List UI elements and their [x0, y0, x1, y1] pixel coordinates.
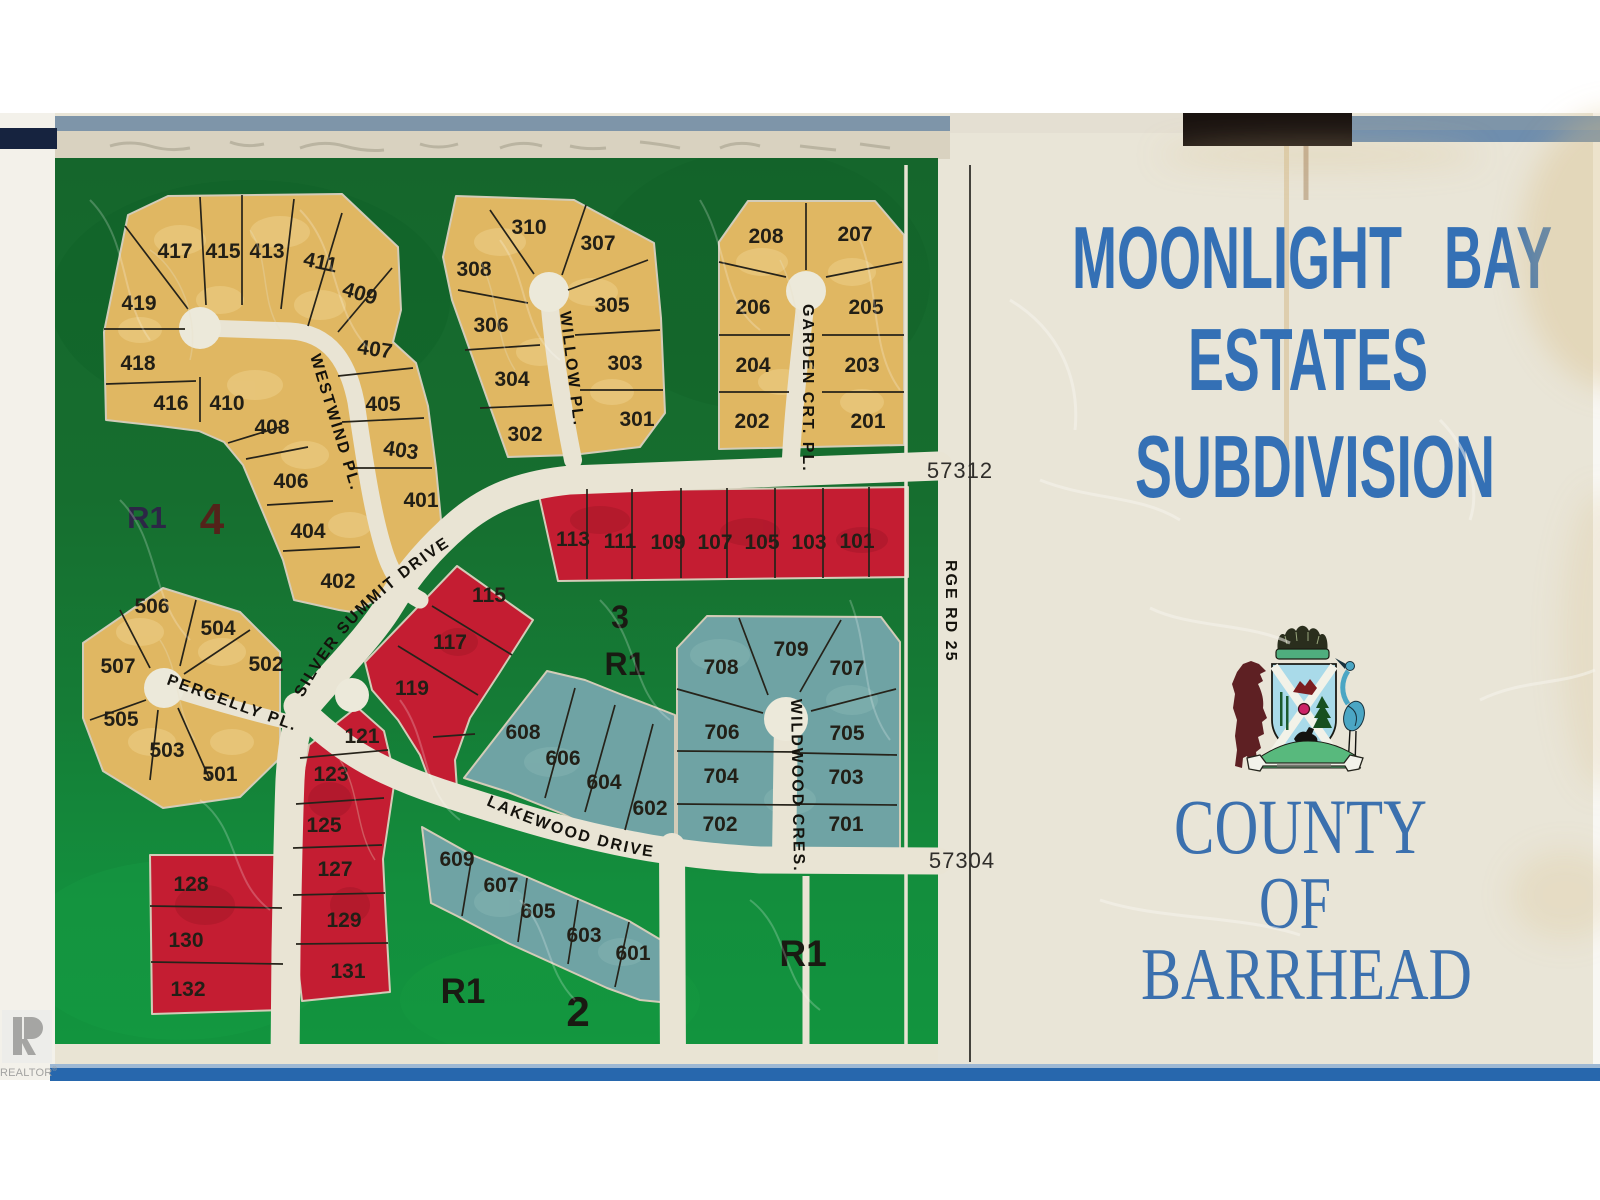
svg-text:REALTOR®: REALTOR® — [0, 1066, 57, 1079]
svg-text:701: 701 — [828, 813, 863, 836]
svg-text:130: 130 — [168, 929, 203, 952]
svg-text:BARRHEAD: BARRHEAD — [1141, 934, 1472, 1016]
svg-text:502: 502 — [248, 653, 283, 676]
svg-text:WILDWOOD CRES.: WILDWOOD CRES. — [787, 699, 807, 873]
svg-text:107: 107 — [697, 531, 732, 554]
svg-text:416: 416 — [153, 392, 188, 415]
svg-text:705: 705 — [829, 722, 864, 745]
svg-text:605: 605 — [520, 900, 555, 923]
svg-text:417: 417 — [157, 240, 192, 263]
svg-text:301: 301 — [619, 408, 654, 431]
svg-text:306: 306 — [473, 314, 508, 337]
svg-text:R1: R1 — [779, 933, 826, 974]
svg-text:602: 602 — [632, 797, 667, 820]
svg-text:129: 129 — [326, 909, 361, 932]
svg-text:131: 131 — [330, 960, 365, 983]
svg-text:609: 609 — [439, 848, 474, 871]
svg-text:208: 208 — [748, 225, 783, 248]
svg-text:307: 307 — [580, 232, 615, 255]
svg-text:57304: 57304 — [929, 848, 995, 873]
svg-text:607: 607 — [483, 874, 518, 897]
svg-text:704: 704 — [703, 765, 738, 788]
svg-text:503: 503 — [149, 739, 184, 762]
svg-text:702: 702 — [702, 813, 737, 836]
svg-text:132: 132 — [170, 978, 205, 1001]
svg-text:303: 303 — [607, 352, 642, 375]
svg-text:405: 405 — [365, 393, 400, 416]
svg-text:608: 608 — [505, 721, 540, 744]
svg-text:103: 103 — [791, 531, 826, 554]
svg-text:507: 507 — [100, 655, 135, 678]
svg-text:709: 709 — [773, 638, 808, 661]
svg-text:708: 708 — [703, 656, 738, 679]
svg-text:419: 419 — [121, 292, 156, 315]
svg-text:410: 410 — [209, 392, 244, 415]
svg-text:109: 109 — [650, 531, 685, 554]
svg-text:304: 304 — [494, 368, 529, 391]
svg-text:121: 121 — [344, 725, 379, 748]
svg-text:406: 406 — [273, 470, 308, 493]
svg-text:604: 604 — [586, 771, 621, 794]
svg-text:203: 203 — [844, 354, 879, 377]
svg-text:707: 707 — [829, 657, 864, 680]
svg-text:4: 4 — [200, 495, 225, 544]
svg-text:403: 403 — [382, 437, 420, 465]
svg-text:501: 501 — [202, 763, 237, 786]
svg-text:125: 125 — [306, 814, 341, 837]
svg-text:418: 418 — [120, 352, 155, 375]
svg-text:201: 201 — [850, 410, 885, 433]
svg-text:119: 119 — [395, 677, 429, 700]
svg-text:413: 413 — [249, 240, 284, 263]
svg-text:505: 505 — [103, 708, 138, 731]
svg-text:601: 601 — [615, 942, 650, 965]
svg-text:57312: 57312 — [927, 458, 993, 483]
svg-text:706: 706 — [704, 721, 739, 744]
svg-text:117: 117 — [433, 631, 467, 654]
svg-text:703: 703 — [828, 766, 863, 789]
svg-text:127: 127 — [317, 858, 352, 881]
svg-text:408: 408 — [254, 416, 289, 439]
svg-text:101: 101 — [839, 530, 874, 553]
svg-text:115: 115 — [472, 584, 506, 607]
svg-text:205: 205 — [848, 296, 883, 319]
svg-text:GARDEN CRT. PL.: GARDEN CRT. PL. — [799, 304, 816, 473]
svg-text:SUBDIVISION: SUBDIVISION — [1135, 417, 1495, 516]
svg-text:RGE RD 25: RGE RD 25 — [942, 560, 959, 662]
svg-text:401: 401 — [403, 489, 438, 512]
svg-text:R1: R1 — [441, 972, 486, 1011]
svg-text:603: 603 — [566, 924, 601, 947]
svg-text:504: 504 — [200, 617, 235, 640]
svg-text:MOONLIGHT: MOONLIGHT — [1072, 208, 1402, 307]
svg-text:105: 105 — [744, 531, 779, 554]
svg-text:402: 402 — [320, 570, 355, 593]
svg-text:COUNTY: COUNTY — [1174, 783, 1427, 870]
svg-text:404: 404 — [290, 520, 325, 543]
svg-text:302: 302 — [507, 423, 542, 446]
svg-text:305: 305 — [594, 294, 629, 317]
svg-text:128: 128 — [173, 873, 208, 896]
svg-text:606: 606 — [545, 747, 580, 770]
svg-text:ESTATES: ESTATES — [1188, 310, 1428, 409]
svg-text:111: 111 — [604, 530, 637, 553]
svg-text:415: 415 — [205, 240, 240, 263]
svg-text:202: 202 — [734, 410, 769, 433]
svg-text:310: 310 — [511, 216, 546, 239]
svg-text:308: 308 — [456, 258, 491, 281]
svg-text:204: 204 — [735, 354, 770, 377]
svg-text:207: 207 — [837, 223, 872, 246]
svg-text:113: 113 — [556, 528, 590, 551]
